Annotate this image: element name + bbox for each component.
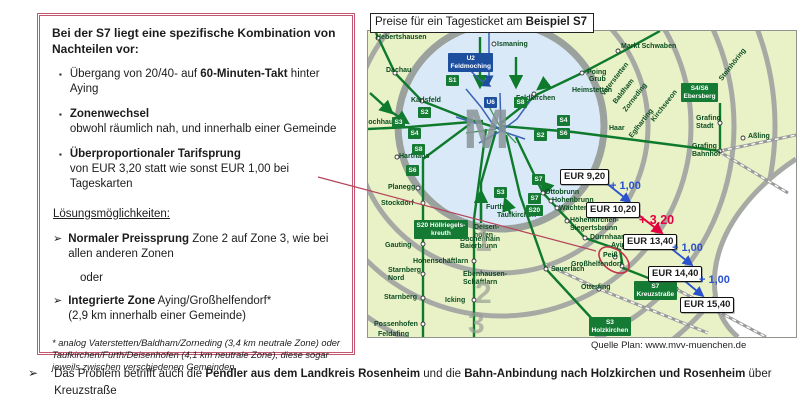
price-label: EUR 10,20 xyxy=(586,202,640,218)
price-label: EUR 15,40 xyxy=(680,297,734,313)
sbahn-line-badge: S2 xyxy=(534,130,547,141)
station-label: Ottobrunn xyxy=(545,189,579,197)
station-label: Stockdorf xyxy=(381,200,414,208)
station-label: Ismaning xyxy=(497,41,528,49)
price-label: EUR 14,40 xyxy=(648,266,702,282)
station-label: Dürrnhaar xyxy=(590,234,624,242)
station-label: Furth xyxy=(486,204,504,212)
bullet1-pre: Übergang von 20/40- auf xyxy=(70,68,200,80)
station-label: Dachau xyxy=(386,67,411,75)
zone-number: 1 xyxy=(475,227,492,257)
sbahn-line-badge: S3 Holzkirchen xyxy=(589,317,631,336)
zone-number: 2 xyxy=(475,279,492,309)
problem-box-title: Bei der S7 liegt eine spezifische Kombin… xyxy=(52,26,341,57)
sbahn-line-badge: S1 xyxy=(446,75,459,86)
solution2-bold: Integrierte Zone xyxy=(68,295,155,307)
station-label: Starnberg xyxy=(384,294,417,302)
price-label: EUR 9,20 xyxy=(560,169,609,185)
sbahn-line-badge: S8 xyxy=(412,144,425,155)
map-title-bold: Beispiel S7 xyxy=(526,16,587,28)
bullet2-sub: obwohl räumlich nah, und innerhalb einer… xyxy=(70,123,337,135)
footer-pre: Das Problem betrifft auch die xyxy=(54,368,205,380)
solution-2: ➢ Integrierte Zone Aying/Großhelfendorf*… xyxy=(53,294,341,324)
station-label: Höhenkirchen- Siegertsbrunn xyxy=(570,217,619,233)
arrow-bullet-icon: ➢ xyxy=(53,294,62,324)
zone-number: 3 xyxy=(468,309,485,338)
sbahn-line-badge: S20 xyxy=(526,205,543,216)
problem-bullet-1: ▪ Übergang von 20/40- auf 60-Minuten-Tak… xyxy=(59,67,341,97)
ubahn-line-badge: U2 Feldmoching xyxy=(448,53,493,72)
footer-bold2: Bahn-Anbindung nach Holzkirchen und Rose… xyxy=(464,368,745,380)
sbahn-line-badge: S3 xyxy=(494,187,507,198)
price-increment-label: + 1,00 xyxy=(672,243,703,254)
station-label: Otterfing xyxy=(581,284,611,292)
sbahn-line-badge: S7 Kreuzstraße xyxy=(634,281,677,300)
problem-box: Bei der S7 liegt eine spezifische Kombin… xyxy=(37,13,355,355)
footer-bold1: Pendler aus dem Landkreis Rosenheim xyxy=(205,368,420,380)
price-increment-label: + 1,00 xyxy=(610,181,641,192)
station-label: Grafing Stadt xyxy=(696,115,721,131)
sbahn-line-badge: S4 xyxy=(408,128,421,139)
station-label: Feldafing xyxy=(378,331,409,338)
munich-m-label: M xyxy=(463,101,510,157)
square-bullet-icon: ▪ xyxy=(59,110,62,137)
station-label: Poing xyxy=(587,69,606,77)
bullet3-bold: Überproportionaler Tarifsprung xyxy=(70,148,241,160)
station-label: Peiß xyxy=(603,252,618,260)
sbahn-line-badge: S3 xyxy=(392,117,405,128)
station-label: Hebertshausen xyxy=(376,34,427,42)
sbahn-line-badge: S7 xyxy=(528,193,541,204)
solution2-sub: (2,9 km innerhalb einer Gemeinde) xyxy=(68,310,246,322)
or-label: oder xyxy=(80,272,341,284)
sbahn-line-badge: S4/S6 Ebersberg xyxy=(681,83,718,102)
sbahn-line-badge: S4 xyxy=(557,115,570,126)
problem-bullet-3: ▪ Überproportionaler Tarifsprung von EUR… xyxy=(59,147,341,192)
station-label: Starnberg Nord xyxy=(388,267,421,283)
sbahn-line-badge: S2 xyxy=(418,107,431,118)
station-label: Gauting xyxy=(385,242,411,250)
square-bullet-icon: ▪ xyxy=(59,150,62,192)
sbahn-line-badge: S8 xyxy=(514,97,527,108)
price-label: EUR 13,40 xyxy=(623,234,677,250)
station-label: Possenhofen xyxy=(374,321,418,329)
sbahn-line-badge: S6 xyxy=(557,128,570,139)
station-label: Markt Schwaben xyxy=(621,43,676,51)
solution2-post: Aying/Großhelfendorf* xyxy=(155,295,271,307)
arrow-bullet-icon: ➢ xyxy=(53,232,62,262)
footer-mid: und die xyxy=(420,368,464,380)
sbahn-line-badge: S7 xyxy=(532,174,545,185)
station-label: Großhelfendorf xyxy=(571,261,622,269)
station-label: Grafing Bahnhof xyxy=(692,143,720,159)
problem-bullet-2: ▪ Zonenwechsel obwohl räumlich nah, und … xyxy=(59,107,341,137)
solutions-heading: Lösungsmöglichkeiten: xyxy=(53,208,341,220)
station-label: Hohenschäftlarn xyxy=(413,258,468,266)
solution1-bold: Normaler Preissprung xyxy=(68,233,189,245)
mvv-network-map: M HebertshausenDachauKarlsfeldLochhausen… xyxy=(367,30,797,338)
map-title-pre: Preise für ein Tagesticket am xyxy=(375,16,526,28)
station-label: Planegg xyxy=(388,184,415,192)
arrow-bullet-icon: ➢ xyxy=(28,366,38,399)
map-source-credit: Quelle Plan: www.mvv-muenchen.de xyxy=(591,340,746,351)
station-label: Icking xyxy=(445,297,465,305)
station-label: Haar xyxy=(609,125,625,133)
slide: Bei der S7 liegt eine spezifische Kombin… xyxy=(0,0,799,409)
solution-1: ➢ Normaler Preissprung Zone 2 auf Zone 3… xyxy=(53,232,341,262)
price-increment-label: + 3,20 xyxy=(639,214,674,227)
station-label: Karlsfeld xyxy=(411,97,441,105)
ubahn-line-badge: U6 xyxy=(484,97,497,108)
bullet2-bold: Zonenwechsel xyxy=(70,108,149,120)
map-title-box: Preise für ein Tagesticket am Beispiel S… xyxy=(370,13,594,33)
footer-bullet: ➢ Das Problem betrifft auch die Pendler … xyxy=(28,366,788,399)
square-bullet-icon: ▪ xyxy=(59,70,62,97)
sbahn-line-badge: S6 xyxy=(406,165,419,176)
bullet1-bold: 60-Minuten-Takt xyxy=(200,68,287,80)
price-increment-label: + 1,00 xyxy=(699,275,730,286)
station-label: Aßling xyxy=(748,133,770,141)
bullet3-sub: von EUR 3,20 statt wie sonst EUR 1,00 be… xyxy=(70,163,289,190)
station-label: Grub xyxy=(589,76,606,84)
sbahn-line-badge: S20 Höllriegels- kreuth xyxy=(414,220,468,239)
